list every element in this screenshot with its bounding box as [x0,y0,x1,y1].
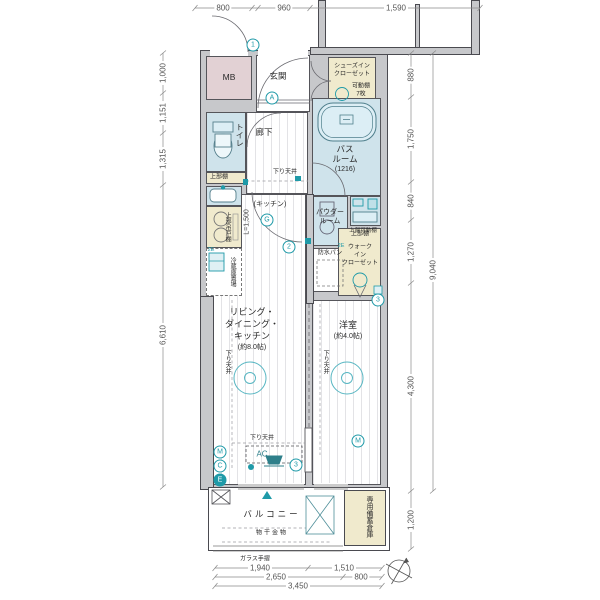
toilet-shelf-label: 上部棚 [210,175,228,182]
marker-c-ldk: C [214,460,227,473]
mb-door-arc [212,16,248,52]
marker-m-bedroom: M [352,435,365,448]
glass-rail-label: ガラス手摺 [240,557,270,564]
marker-a: A [266,92,279,105]
ceiling-light-icons [234,362,363,394]
down-ceiling-ldk-label: 下り天井 [224,350,230,374]
ac-unit-icon [266,456,282,464]
bath-size-label: (1216) [335,166,355,174]
sic-door-arc-bottom [311,81,331,101]
dim-right-1750: 1,750 [407,127,416,151]
dim-top-960: 960 [275,4,292,13]
sic-shelf-label-2: 7枚 [356,92,365,99]
toilet-icon [213,122,233,158]
hall-ldk-door-arc [252,192,302,242]
compass-icon [386,558,412,584]
down-ceiling-ac-label: 下り天井 [250,436,274,443]
bath-label-2: ルーム [332,155,357,165]
toilet-label: トイレ [235,123,243,147]
dim-top-800: 800 [214,4,231,13]
marker-1: 1 [247,39,260,52]
dim-bottom-1510: 1,510 [332,564,356,573]
floor-plan: MB 玄関 シューズイン クローゼット 可動棚 7枚 トイレ 上部棚 廊下 バス… [0,0,600,600]
sic-label-2: クローゼット [334,72,370,79]
wic-shelf-label: 上部棚 [351,232,369,239]
dim-left-1315: 1,315 [159,147,168,171]
storage-label: 専用備蓄倉庫 [357,496,373,540]
hallway-label: 廊下 [255,128,272,138]
powder-label-2: ルーム [320,218,341,226]
bedroom-label: 洋室 [339,320,357,330]
pan-label: 防水パン [318,251,342,258]
wic-label-2: イン [354,253,366,260]
dim-left-1151: 1,151 [159,101,168,125]
wic-label-1: ウォーク [348,245,372,252]
bathtub-icon [318,103,376,141]
dim-left-1000: 1,000 [159,61,168,85]
dim-right-840: 840 [407,192,416,209]
sic-door-arc-top [311,61,331,81]
wic-label-3: クローゼット [342,261,378,268]
balcony-step-marker [262,491,272,499]
sliding-door-panel [305,428,312,472]
dim-top-1590: 1,590 [384,4,408,13]
balcony-label: バルコニー [243,510,300,520]
marker-2: 2 [283,241,296,254]
pan-outlet-label: 2E [338,243,345,249]
dim-right-1270: 1,270 [407,240,416,264]
sic-shelf-label-1: 可動棚 [352,84,370,91]
down-ceiling-bedroom-label: 下り天井 [322,350,328,374]
kitchen-length-label: L=1,500 [244,209,251,235]
powder-label-1: パウダー [316,209,344,217]
ldk-label-2: ダイニング・ [225,319,279,329]
dim-bottom-2650: 2,650 [264,573,288,582]
washer-pan-icon [317,260,343,286]
dim-right-4300: 4,300 [407,374,416,398]
dim-right-9040: 9,040 [429,258,438,282]
dim-right-1200: 1,200 [407,508,416,532]
ldk-label-3: キッチン [234,331,270,341]
fridge-outlet-label: 2E [208,247,215,253]
dim-right-880: 880 [407,66,416,83]
down-ceiling-hall-label: 下り天井 [273,170,297,177]
kitchen-label: (キッチン) [254,201,287,209]
kitchen-cabinet-label: 上部吊戸棚 [224,212,230,242]
ac-label: AC [256,449,267,458]
bedroom-size-label: (約4.0帖) [334,333,362,341]
ldk-size-label: (約8.0帖) [238,344,266,352]
fridge-label: 冷蔵庫置場 [229,257,235,287]
mb-label: MB [223,73,236,83]
wic-circle-icon [353,273,367,287]
marker-3-ac: 3 [290,459,303,472]
marker-e-ldk: E [214,474,227,487]
sic-circle-icon [336,88,349,101]
marker-g: G [261,214,274,227]
sic-label-1: シューズイン [334,64,370,71]
dim-bottom-3450: 3,450 [286,582,310,591]
dim-left-6610: 6,610 [159,323,168,347]
ldk-label-1: リビング・ [229,307,274,317]
dim-bottom-800: 800 [352,573,369,582]
marker-m-ldk: M [214,446,227,459]
dim-bottom-1940: 1,940 [248,564,272,573]
genkan-step-line [256,100,310,103]
marker-3-wic: 3 [372,294,385,307]
window-lines [238,485,348,489]
genkan-label: 玄関 [269,72,286,82]
monohoshi-label: 物干金物 [256,531,288,538]
